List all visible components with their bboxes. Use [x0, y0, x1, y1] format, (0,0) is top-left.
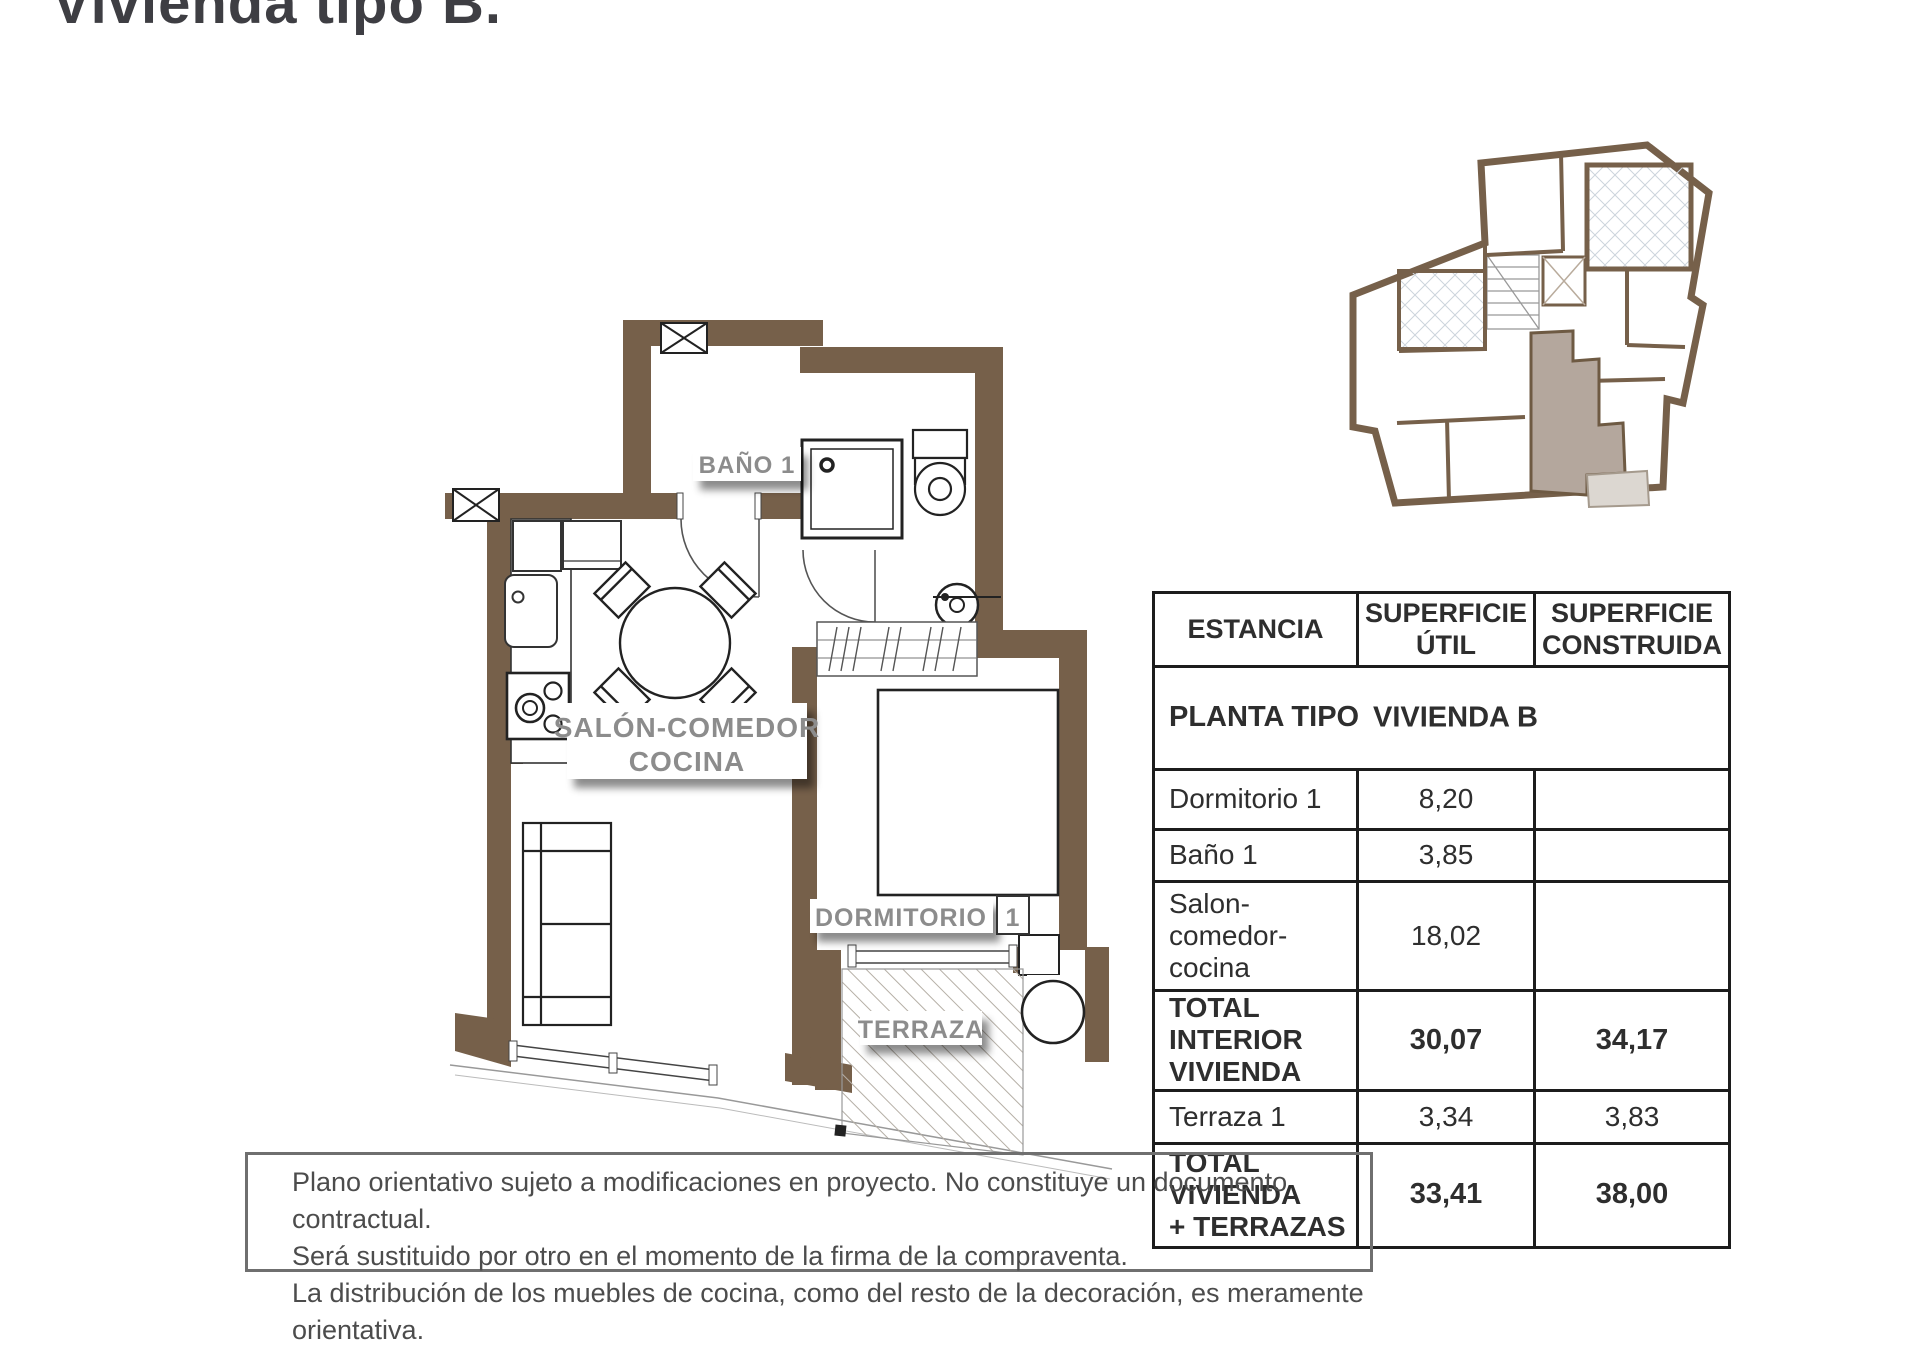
- svg-text:TERRAZA: TERRAZA: [858, 1016, 984, 1044]
- table-subheader-row: PLANTA TIPO VIVIENDA B: [1154, 667, 1730, 770]
- svg-text:DORMITORIO: DORMITORIO: [815, 904, 987, 932]
- subheader-vivienda-b: VIVIENDA B: [1373, 701, 1538, 734]
- terraza-label: TERRAZA: [858, 1011, 984, 1045]
- salon-label-line2: COCINA: [629, 746, 745, 777]
- bano-label: BAÑO 1: [693, 447, 801, 481]
- shower-icon: [802, 440, 902, 538]
- toilet-icon: [913, 430, 967, 515]
- salon-label: SALÓN-COMEDOR COCINA: [554, 703, 821, 779]
- disclaimer-box: Plano orientativo sujeto a modificacione…: [245, 1152, 1373, 1272]
- terrace-hatch: [842, 969, 1023, 1155]
- floor-plan: SALÓN-COMEDOR COCINA BAÑO 1 DORMITORIO 1…: [355, 275, 1115, 1205]
- table-row: Baño 1 3,85: [1154, 830, 1730, 882]
- bed-icon: [878, 690, 1058, 895]
- subheader-planta-tipo: PLANTA TIPO: [1169, 701, 1359, 733]
- header-util: SUPERFICIE ÚTIL: [1358, 593, 1535, 667]
- table-row: Salon- comedor- cocina 18,02: [1154, 882, 1730, 991]
- nightstand-icon: [1019, 935, 1059, 975]
- table-row: Terraza 1 3,34 3,83: [1154, 1090, 1730, 1143]
- dining-table-icon: [594, 562, 755, 723]
- disclaimer-line: La distribución de los muebles de cocina…: [292, 1275, 1370, 1349]
- sofa-icon: [523, 823, 611, 1025]
- patio-w: [1399, 271, 1485, 349]
- vent-icon: [453, 323, 707, 521]
- patio-ne: [1587, 165, 1691, 269]
- surface-table: ESTANCIA SUPERFICIE ÚTIL SUPERFICIE CONS…: [1152, 591, 1731, 1249]
- page: { "title": "Vivienda tipo B.", "plan": {…: [0, 0, 1920, 1280]
- washing-machine-icon: [1022, 981, 1084, 1043]
- disclaimer-line: Plano orientativo sujeto a modificacione…: [292, 1164, 1370, 1238]
- wardrobe-icon: [817, 622, 977, 676]
- highlighted-unit-terrace: [1587, 471, 1649, 507]
- corner-post: [834, 1125, 846, 1137]
- header-construida: SUPERFICIE CONSTRUIDA: [1535, 593, 1730, 667]
- kitchen-sink-icon: [505, 575, 557, 647]
- salon-label-line1: SALÓN-COMEDOR: [554, 712, 821, 743]
- building-key-plan: [1335, 135, 1725, 530]
- table-row: Dormitorio 1 8,20: [1154, 770, 1730, 830]
- table-header-row: ESTANCIA SUPERFICIE ÚTIL SUPERFICIE CONS…: [1154, 593, 1730, 667]
- table-row-total-interior: TOTAL INTERIOR VIVIENDA 30,07 34,17: [1154, 991, 1730, 1091]
- header-estancia: ESTANCIA: [1154, 593, 1358, 667]
- page-title: Vivienda tipo B.: [52, 0, 502, 37]
- svg-text:BAÑO 1: BAÑO 1: [699, 451, 796, 479]
- dormitorio-number: 1: [1006, 904, 1021, 932]
- dormitorio-label: DORMITORIO 1: [810, 896, 1029, 934]
- disclaimer-line: Será sustituido por otro en el momento d…: [292, 1238, 1370, 1275]
